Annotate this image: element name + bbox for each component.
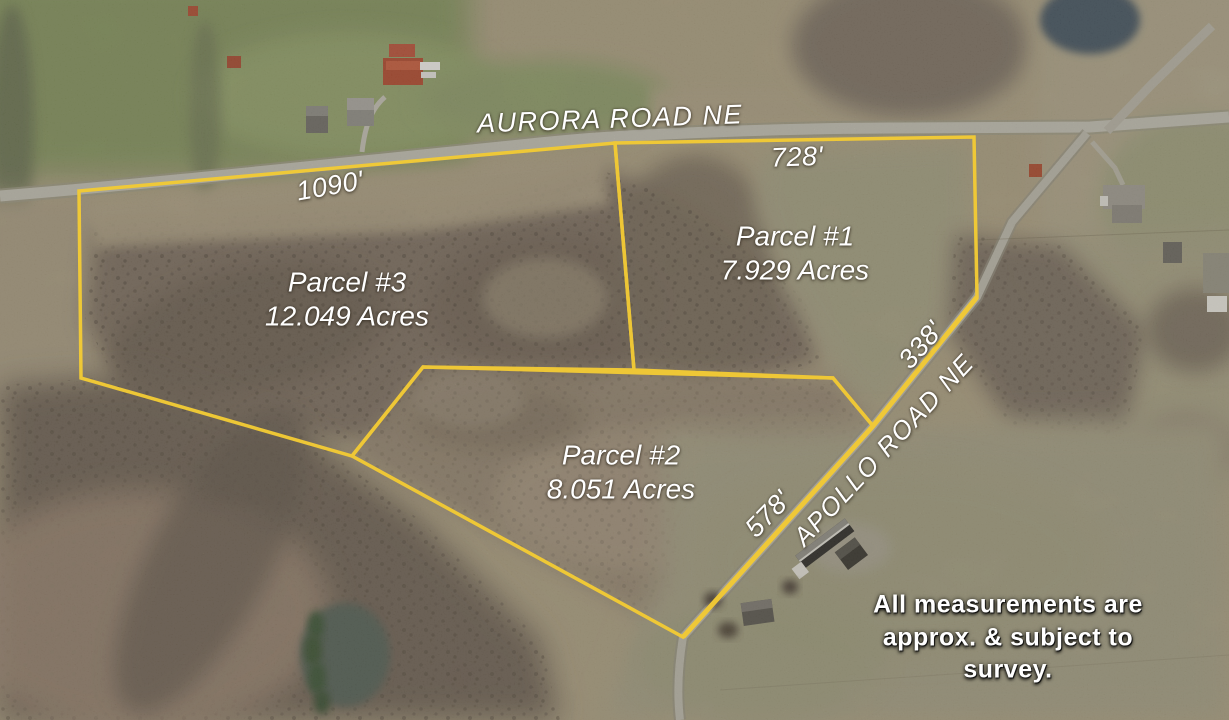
parcel-2-acres: 8.051 Acres xyxy=(547,472,695,506)
measurements-disclaimer: All measurements are approx. & subject t… xyxy=(873,588,1143,686)
parcel-2-label: Parcel #2 8.051 Acres xyxy=(547,438,695,505)
parcel-1-acres: 7.929 Acres xyxy=(721,253,869,287)
parcel-2-name: Parcel #2 xyxy=(547,438,695,472)
parcel-3-label: Parcel #3 12.049 Acres xyxy=(265,265,429,332)
parcel-1-label: Parcel #1 7.929 Acres xyxy=(721,219,869,286)
parcel-3-acres: 12.049 Acres xyxy=(265,299,429,333)
measurement-728: 728' xyxy=(770,140,823,174)
parcel-1-name: Parcel #1 xyxy=(721,219,869,253)
parcel-3-name: Parcel #3 xyxy=(265,265,429,299)
aerial-survey-map: AURORA ROAD NE 1090' 728' Parcel #1 7.92… xyxy=(0,0,1229,720)
